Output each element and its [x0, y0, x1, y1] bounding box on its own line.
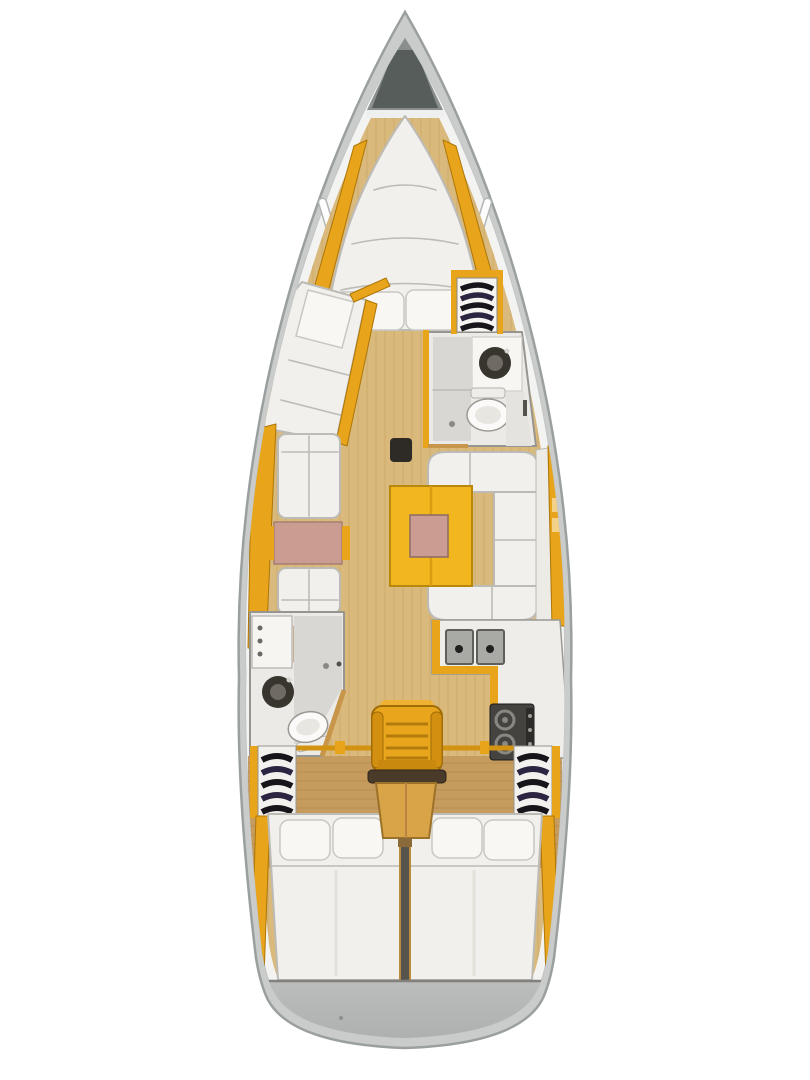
forward-wardrobe [451, 270, 503, 334]
door-handle [523, 400, 527, 416]
aft-wardrobe-port [250, 746, 296, 818]
forward-head-trim [423, 330, 429, 448]
toilet-tank [471, 388, 505, 398]
sailboat-floor-plan [0, 0, 810, 1080]
wardrobe-left-post [451, 276, 457, 334]
port-table [274, 522, 342, 564]
engine-box-foot [398, 838, 412, 847]
port-table-trim-right [342, 526, 350, 560]
wardrobe-right-post [497, 276, 503, 334]
cabinet-knob [258, 626, 263, 631]
faucet-icon [287, 678, 292, 683]
rail-post [480, 741, 489, 754]
forward-head [423, 330, 536, 448]
pillow [432, 818, 482, 858]
wardrobe-top-trim [451, 270, 503, 278]
cabinet-knob [258, 639, 263, 644]
transom-drain-dot [339, 1016, 343, 1020]
faucet-icon [505, 349, 510, 354]
transom [256, 980, 554, 1044]
cabinet-knob [258, 652, 263, 657]
aft-wardrobe-starboard [514, 746, 560, 818]
pillow [333, 818, 383, 858]
washbasin-bowl [270, 684, 286, 700]
washbasin-bowl [487, 355, 503, 371]
saloon-settee-bottom [428, 586, 538, 620]
toilet-seat [475, 406, 501, 424]
toilet-icon [467, 388, 509, 431]
port-table-trim-left [266, 526, 274, 560]
wardrobe-post [552, 746, 560, 818]
interior [248, 30, 570, 1044]
pillow [280, 820, 330, 860]
shower-drain-icon [449, 421, 455, 427]
wardrobe-post [250, 746, 258, 818]
table-inset [410, 515, 448, 557]
sailboat-floor-plan-page [0, 0, 810, 1080]
mast-post-icon [390, 438, 412, 462]
shower-drain-icon [323, 663, 329, 669]
pillow [484, 820, 534, 860]
steps-rail-left [372, 712, 383, 768]
bottom-tread [368, 770, 446, 783]
saloon-settee-side [494, 492, 538, 586]
steps-front [378, 760, 436, 770]
steps-rail-right [431, 712, 442, 768]
rail-post [335, 741, 345, 754]
swim-platform [256, 980, 554, 1044]
door-handle [337, 662, 342, 667]
aft-head [250, 612, 344, 756]
